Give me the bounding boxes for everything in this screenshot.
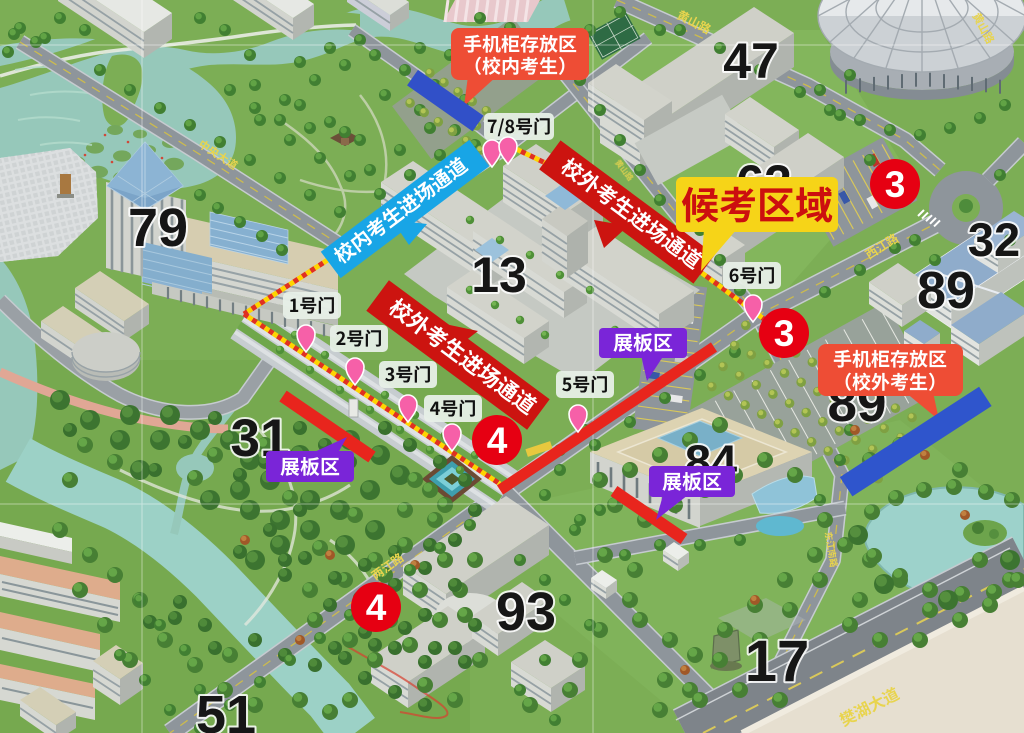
- svg-text:4: 4: [366, 587, 387, 628]
- svg-text:51: 51: [196, 685, 256, 733]
- svg-text:13: 13: [471, 247, 527, 303]
- svg-text:47: 47: [723, 33, 779, 89]
- svg-text:93: 93: [496, 582, 556, 642]
- svg-text:4: 4: [487, 420, 508, 461]
- svg-text:32: 32: [968, 213, 1020, 266]
- svg-text:3: 3: [774, 313, 795, 354]
- svg-text:3: 3: [885, 164, 906, 205]
- svg-text:89: 89: [917, 262, 975, 320]
- svg-text:79: 79: [128, 198, 188, 258]
- svg-text:17: 17: [745, 629, 810, 694]
